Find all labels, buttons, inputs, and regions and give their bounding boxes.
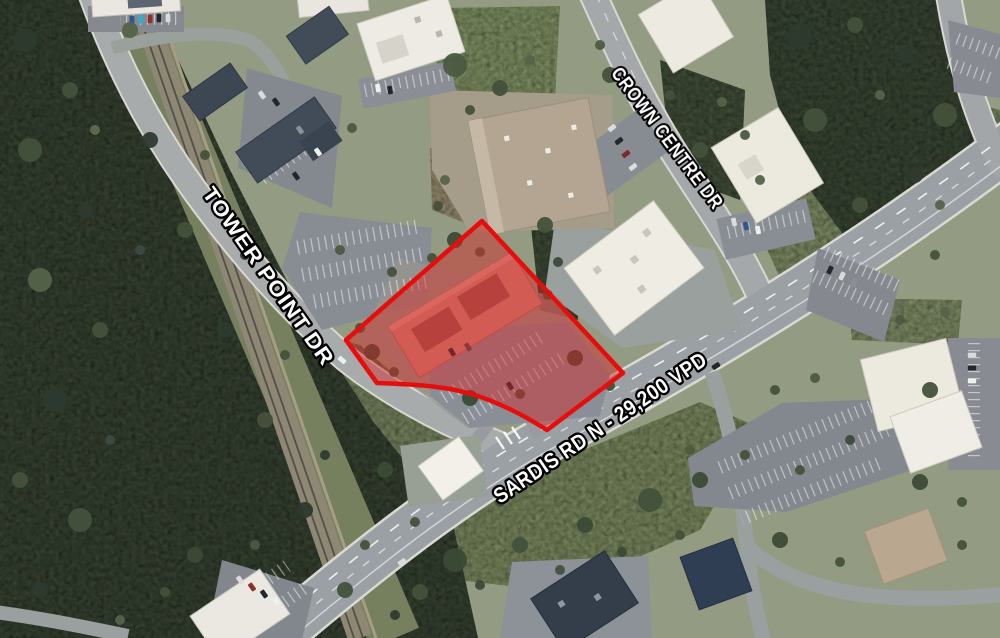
aerial-map: TOWER POINT DR CROWN CENTRE DR SARDIS RD… <box>0 0 1000 638</box>
aerial-map-figure: TOWER POINT DR CROWN CENTRE DR SARDIS RD… <box>0 0 1000 638</box>
building-warehouse <box>468 98 610 235</box>
